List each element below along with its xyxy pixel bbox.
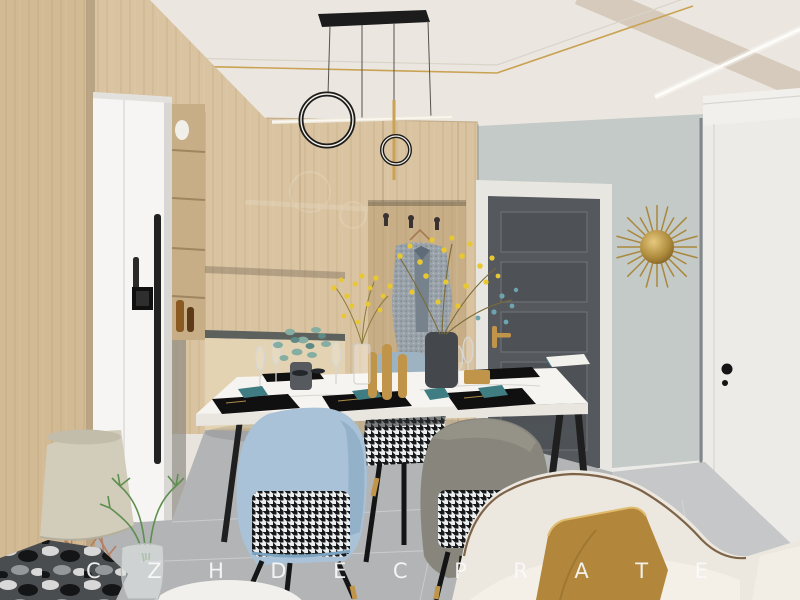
gold-box — [464, 370, 490, 384]
black-vase — [425, 332, 458, 388]
open-shelf — [172, 104, 205, 340]
interior-rendering: C Z H D E C P R A T E — [0, 0, 800, 600]
houndstooth-cushion — [252, 491, 350, 557]
fridge-dispenser — [132, 287, 153, 310]
keyhole — [722, 380, 728, 386]
shelf-bottle — [187, 307, 194, 332]
shelf-vase — [175, 120, 189, 140]
small-vase — [290, 362, 312, 390]
fridge-handle — [154, 214, 161, 464]
scene — [0, 0, 800, 600]
shelf-bottle — [176, 300, 184, 332]
glass-vase — [354, 344, 370, 384]
door-knob — [722, 364, 733, 375]
